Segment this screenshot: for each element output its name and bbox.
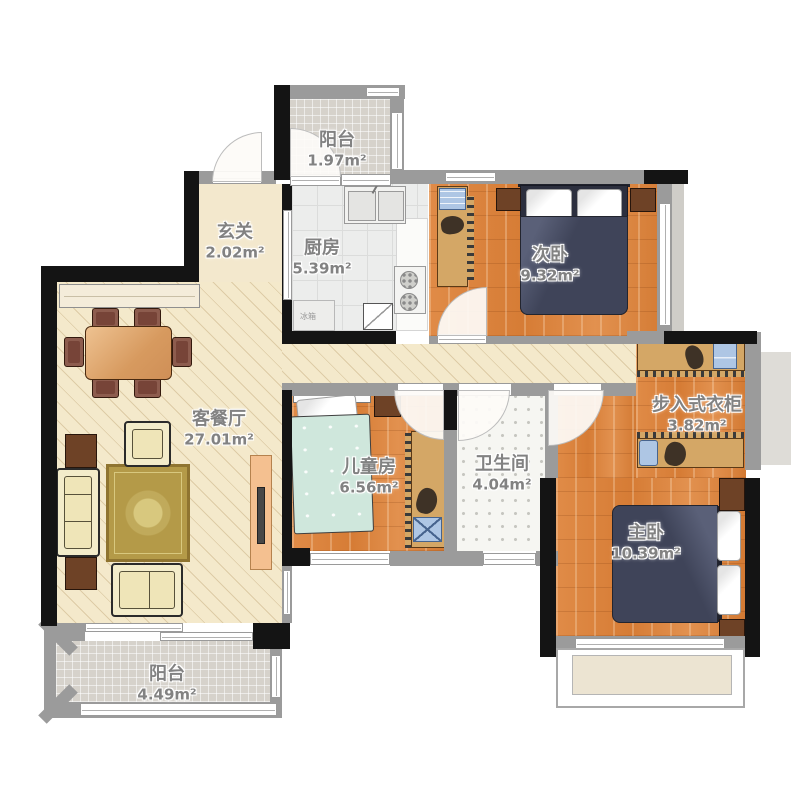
room-label-kitchen: 厨房 5.39m² [292,237,351,280]
room-label-closet: 步入式衣柜 3.82m² [652,394,742,437]
room-label-kids-room: 儿童房 6.56m² [339,456,398,499]
pillow [717,511,741,561]
room-label-second-bedroom: 次卧 9.32m² [520,244,579,287]
dining-table [85,326,172,380]
wall [41,266,184,282]
wall [282,548,310,566]
dining-chair [64,337,84,367]
desk-edge-hatch [467,196,474,280]
closet-chair [639,440,658,466]
room-label-bathroom: 卫生间 4.04m² [472,453,531,496]
burner-icon [400,271,418,289]
pillow [717,565,741,615]
loveseat [111,563,183,617]
tv [257,487,265,544]
sofa [56,468,100,557]
nightstand [719,478,745,511]
kitchen-door-opening [283,210,292,300]
wall [282,390,292,564]
nightstand [630,188,656,212]
wall [602,383,636,396]
wall [282,331,396,344]
window [366,87,400,97]
wall [745,478,760,657]
closet-edge-hatch [637,371,745,377]
window [283,570,291,615]
room-label-bottom-balcony: 阳台 4.49m² [137,663,196,706]
exterior-ledge [672,176,684,332]
entry-door-swing [212,132,262,182]
floor-plan: 冰箱 [0,0,800,800]
wall [41,282,57,626]
wall [274,85,290,180]
hanging-shirt [713,343,737,369]
window [445,172,496,182]
kitchen-sink [344,186,406,224]
room-label-entry: 玄关 2.02m² [205,221,264,264]
window [310,553,390,565]
computer-monitor [439,188,466,210]
wall [44,641,56,702]
dishwasher-door [363,303,393,330]
armchair [124,421,171,467]
wall [664,331,757,344]
wall [540,478,556,657]
side-table [65,557,97,590]
master-balcony [556,648,745,708]
window [659,203,671,326]
wall [184,171,199,282]
window [483,553,536,565]
dining-chair [92,377,119,398]
sliding-door [85,623,183,632]
window [391,112,403,170]
wall [644,170,688,184]
exterior-ledge [761,352,791,465]
folded-clothes [413,517,442,542]
wall [745,332,761,470]
wall [197,171,212,184]
room-label-top-balcony: 阳台 1.97m² [307,129,366,172]
wall [444,390,457,430]
window [271,655,281,698]
sliding-door [160,632,253,641]
sideboard [59,284,200,308]
side-table [65,434,97,468]
room-label-master-bedroom: 主卧 10.39m² [611,522,681,565]
dining-chair [134,377,161,398]
fridge: 冰箱 [293,300,335,331]
room-label-living-dining: 客餐厅 27.01m² [184,408,254,451]
wall [391,170,404,184]
stove [394,266,426,314]
wall [282,383,397,396]
wall [253,623,290,649]
burner-icon [400,293,418,311]
window [341,174,391,186]
rug [106,464,190,562]
dining-chair [172,337,192,367]
master-balcony-inner [572,655,732,695]
wall [390,551,483,566]
nightstand [496,188,521,211]
fridge-label: 冰箱 [300,311,316,322]
